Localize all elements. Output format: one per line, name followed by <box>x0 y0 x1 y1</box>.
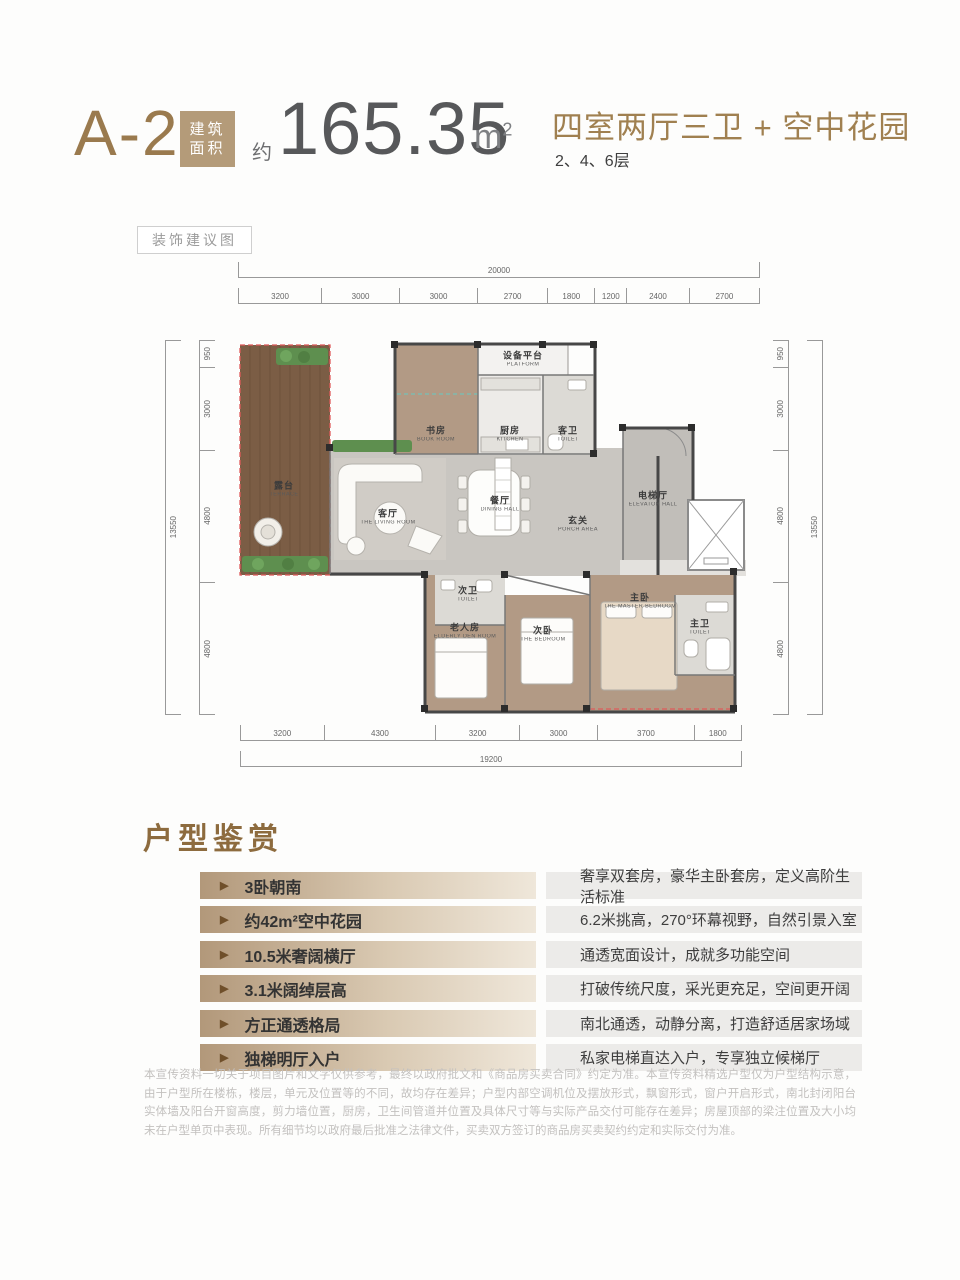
feature-label-text: 3.1米阔绰层高 <box>244 977 346 1001</box>
dim-segment: 4800 <box>773 450 788 582</box>
feature-label: ▶3卧朝南 <box>200 872 536 899</box>
feature-label: ▶方正通透格局 <box>200 1010 536 1037</box>
dim-segment: 3200 <box>238 288 321 304</box>
triangle-bullet-icon: ▶ <box>220 1051 228 1064</box>
dim-label: 3200 <box>239 292 321 301</box>
dim-segment: 1800 <box>547 288 594 304</box>
dim-label: 3000 <box>322 292 399 301</box>
dim-ruler-right: 950 3000 4800 4800 13550 <box>773 340 823 715</box>
feature-row: ▶约42m²空中花园 6.2米挑高，270°环幕视野，自然引景入室 <box>200 906 862 933</box>
feature-description: 6.2米挑高，270°环幕视野，自然引景入室 <box>546 906 862 933</box>
dim-label: 4300 <box>325 729 436 738</box>
area-unit-base: m <box>474 118 502 156</box>
dim-segment: 950 <box>200 340 215 367</box>
dim-segment: 13550 <box>166 340 181 714</box>
dim-ruler-right-segments: 950 3000 4800 4800 <box>773 340 789 715</box>
dim-segment: 20000 <box>238 262 759 278</box>
area-unit-sup: 2 <box>502 120 512 140</box>
dim-segment: 4800 <box>200 582 215 714</box>
feature-row: ▶3.1米阔绰层高 打破传统尺度，采光更充足，空间更开阔 <box>200 975 862 1002</box>
brochure-page: A-2 建筑 面积 约 165.35 m2 四室两厅三卫 + 空中花园 2、4、… <box>0 0 960 1280</box>
dim-label: 1800 <box>695 729 741 738</box>
dim-label: 3000 <box>520 729 597 738</box>
area-approx-prefix: 约 <box>252 136 272 165</box>
dim-label: 4800 <box>203 640 212 658</box>
feature-row: ▶3卧朝南 奢享双套房，豪华主卧套房，定义高阶生活标准 <box>200 872 862 899</box>
disclaimer-text: 本宣传资料一切关于项目图片和文字仅供参考，最终以政府批文和《商品房买卖合同》约定… <box>144 1066 856 1141</box>
area-unit: m2 <box>474 118 512 157</box>
feature-description: 南北通透，动静分离，打造舒适居家场域 <box>546 1010 862 1037</box>
layout-title: 四室两厅三卫 + 空中花园 <box>552 102 910 147</box>
dim-segment: 3000 <box>200 367 215 450</box>
features-section-title: 户型鉴赏 <box>143 814 283 858</box>
dim-segment: 3000 <box>519 725 597 741</box>
triangle-bullet-icon: ▶ <box>220 879 228 892</box>
dim-label: 2700 <box>690 292 759 301</box>
floors-note: 2、4、6层 <box>555 147 630 171</box>
dim-ruler-bottom-total: 19200 <box>240 751 742 767</box>
triangle-bullet-icon: ▶ <box>220 982 228 995</box>
dim-ruler-left-segments: 950 3000 4800 4800 <box>199 340 215 715</box>
dim-segment: 1200 <box>594 288 626 304</box>
dim-label: 4800 <box>203 507 212 525</box>
dim-segment: 4300 <box>324 725 436 741</box>
dim-label: 13550 <box>169 516 178 538</box>
triangle-bullet-icon: ▶ <box>220 1017 228 1030</box>
dim-label: 2400 <box>627 292 689 301</box>
dim-segment: 3200 <box>240 725 324 741</box>
dim-label: 3000 <box>400 292 477 301</box>
building-area-tag: 建筑 面积 <box>180 111 235 167</box>
feature-description: 奢享双套房，豪华主卧套房，定义高阶生活标准 <box>546 872 862 899</box>
dim-segment: 3000 <box>773 367 788 450</box>
feature-label-text: 约42m²空中花园 <box>244 908 361 932</box>
dim-label: 3200 <box>241 729 324 738</box>
dim-label: 20000 <box>239 266 759 275</box>
dim-ruler-top-total: 20000 <box>238 262 760 278</box>
feature-label-text: 方正通透格局 <box>244 1012 340 1036</box>
dim-segment: 13550 <box>807 340 822 714</box>
dim-ruler-bottom-segments: 3200 4300 3200 3000 3700 1800 <box>240 725 742 741</box>
feature-row: ▶方正通透格局 南北通透，动静分离，打造舒适居家场域 <box>200 1010 862 1037</box>
dim-segment: 3000 <box>399 288 477 304</box>
dim-segment: 3200 <box>435 725 519 741</box>
dim-label: 3700 <box>598 729 693 738</box>
dim-ruler-right-total: 13550 <box>807 340 823 715</box>
dim-segment: 1800 <box>694 725 741 741</box>
feature-label-text: 3卧朝南 <box>244 874 301 898</box>
dim-label: 2700 <box>478 292 547 301</box>
feature-label: ▶10.5米奢阔横厅 <box>200 941 536 968</box>
dim-segment: 3700 <box>597 725 693 741</box>
dim-label: 950 <box>776 347 785 360</box>
dim-segment: 4800 <box>773 582 788 714</box>
dim-segment: 2400 <box>626 288 689 304</box>
dim-segment: 19200 <box>240 751 741 767</box>
dim-label: 950 <box>203 347 212 360</box>
building-area-tag-line1: 建筑 <box>189 120 225 140</box>
dim-label: 13550 <box>810 516 819 538</box>
decor-suggestion-tag: 装饰建议图 <box>137 226 252 254</box>
dim-segment: 4800 <box>200 450 215 582</box>
dim-label: 4800 <box>776 640 785 658</box>
dim-label: 3200 <box>436 729 519 738</box>
building-area-tag-line2: 面积 <box>189 139 225 159</box>
dim-label: 4800 <box>776 507 785 525</box>
floor-plan-drawing <box>238 340 760 715</box>
dim-ruler-left-total: 13550 <box>165 340 181 715</box>
dim-segment: 2700 <box>477 288 547 304</box>
dim-label: 1800 <box>548 292 594 301</box>
dim-segment: 2700 <box>689 288 759 304</box>
dim-segment: 3000 <box>321 288 399 304</box>
dim-label: 1200 <box>595 292 626 301</box>
dim-label: 3000 <box>776 400 785 418</box>
dim-label: 3000 <box>203 400 212 418</box>
dim-ruler-left: 13550 950 3000 4800 4800 <box>165 340 215 715</box>
feature-label: ▶3.1米阔绰层高 <box>200 975 536 1002</box>
triangle-bullet-icon: ▶ <box>220 948 228 961</box>
dim-segment: 950 <box>773 340 788 367</box>
feature-description: 打破传统尺度，采光更充足，空间更开阔 <box>546 975 862 1002</box>
feature-row: ▶10.5米奢阔横厅 通透宽面设计，成就多功能空间 <box>200 941 862 968</box>
triangle-bullet-icon: ▶ <box>220 913 228 926</box>
floor-plan-area: 20000 3200 3000 3000 2700 1800 1200 2400… <box>155 262 855 782</box>
dim-label: 19200 <box>241 755 741 764</box>
feature-label: ▶约42m²空中花园 <box>200 906 536 933</box>
feature-label-text: 10.5米奢阔横厅 <box>244 943 355 967</box>
unit-code: A-2 <box>74 96 180 170</box>
feature-description: 通透宽面设计，成就多功能空间 <box>546 941 862 968</box>
dim-ruler-top-segments: 3200 3000 3000 2700 1800 1200 2400 2700 <box>238 288 760 304</box>
